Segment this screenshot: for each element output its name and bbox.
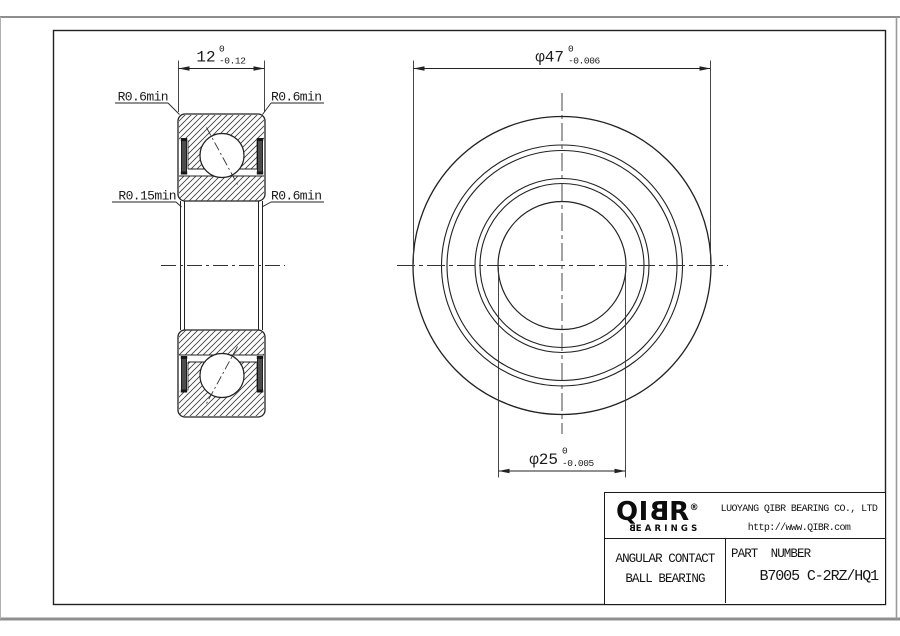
arrowhead [414,66,425,70]
svg-text:R0.6min: R0.6min [271,189,321,204]
seal-top-left [181,138,187,175]
fillet-label-mid-right: R0.6min [262,189,324,208]
company-name: LUOYANG QIBR BEARING CO., LTD [713,500,885,519]
dim-width-tol-lower: -0.12 [219,56,246,67]
dim-width-value: 12 [196,49,215,67]
svg-text:R0.6min: R0.6min [118,90,168,105]
product-type-line1: ANGULAR CONTACT [605,549,725,569]
brand-logo-subtext: BEARINGS [626,524,713,534]
arrowhead [179,66,190,70]
fillet-label-top-left: R0.6min [115,90,180,115]
section-view [161,114,285,417]
arrowhead [700,66,711,70]
front-view [397,93,728,434]
product-type-line2: BALL BEARING [605,569,725,589]
leader-line [168,103,180,115]
inner-ring-hatch [179,176,264,201]
leader-line [263,103,272,115]
part-number-cell: PART NUMBER B7005 C-2RZ/HQ1 [726,539,885,604]
fillet-label-top-right: R0.6min [263,90,325,115]
product-type-cell: ANGULAR CONTACT BALL BEARING [605,539,726,604]
svg-text:R0.15min: R0.15min [118,189,176,204]
arrowhead [254,66,265,70]
inner-ring-hatch [179,331,264,356]
arrowhead [615,469,626,473]
dim-width-tol-upper: 0 [219,44,225,55]
seal-bottom-left [181,356,187,393]
seal-top-right [257,138,263,175]
company-website: http://www.QIBR.com [713,519,885,538]
dim-bore-tol-upper: 0 [562,446,568,457]
brand-logo: QIBR® BEARINGS [605,493,713,538]
svg-text:R0.6min: R0.6min [271,90,321,105]
dim-bore-value: φ25 [529,451,558,469]
dim-od-tol-lower: -0.006 [568,56,601,67]
dim-bore-tol-lower: -0.005 [562,458,595,469]
part-number-label: PART NUMBER [731,547,878,561]
company-info: LUOYANG QIBR BEARING CO., LTD http://www… [713,493,885,538]
part-number-value: B7005 C-2RZ/HQ1 [731,568,878,585]
title-block: QIBR® BEARINGS LUOYANG QIBR BEARING CO.,… [604,492,886,605]
drawing-sheet: 12 0 -0.12 φ47 0 -0.006 φ25 0 -0.005 R0.… [0,0,900,636]
dimension-width: 12 0 -0.12 [179,44,265,113]
fillet-label-mid-left: R0.15min [112,189,182,208]
dim-od-value: φ47 [535,49,564,67]
seal-bottom-right [257,356,263,393]
arrowhead [499,469,510,473]
brand-logo-wordmark: QIBR® [616,496,713,524]
title-block-detail-row: ANGULAR CONTACT BALL BEARING PART NUMBER… [605,539,885,604]
ball-bottom [200,354,244,398]
registered-trademark-icon: ® [690,503,699,513]
dim-od-tol-upper: 0 [568,44,574,55]
leader-line [262,202,271,207]
ball-top [200,134,244,178]
title-block-header-row: QIBR® BEARINGS LUOYANG QIBR BEARING CO.,… [605,493,885,539]
